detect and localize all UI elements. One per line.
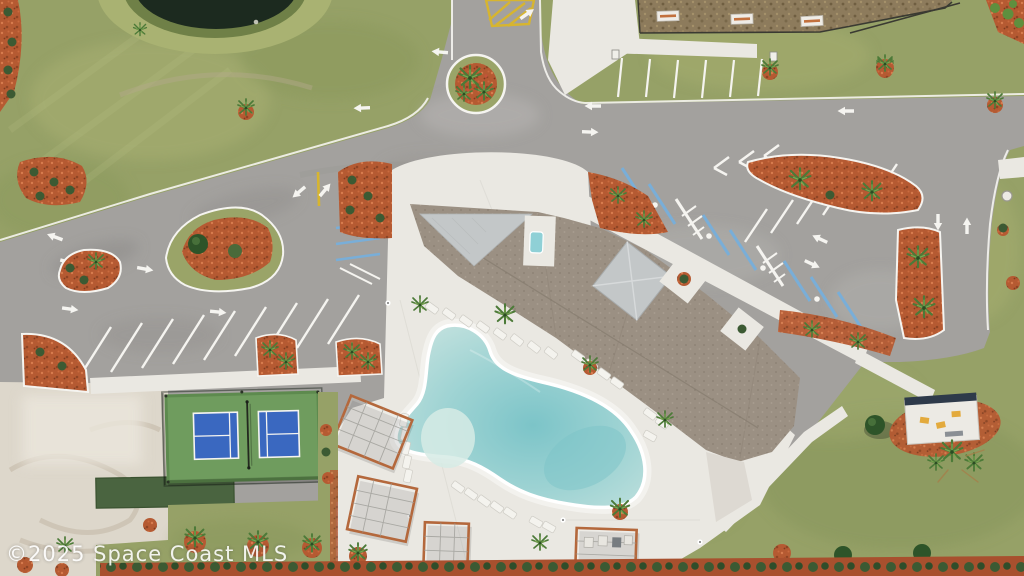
- roundabout-island: [447, 55, 505, 113]
- island-bed-I7: [336, 338, 382, 376]
- aerial-scene: [0, 0, 1024, 576]
- island-small-west: [59, 250, 121, 292]
- island-column-east: [896, 227, 944, 339]
- aerial-photo: ©2025 Space Coast MLS: [0, 0, 1024, 576]
- spa-courtyard: [523, 215, 556, 266]
- island-bed-I6: [256, 334, 298, 376]
- right-path-stub: [998, 157, 1024, 179]
- pickleball-court: [162, 388, 324, 486]
